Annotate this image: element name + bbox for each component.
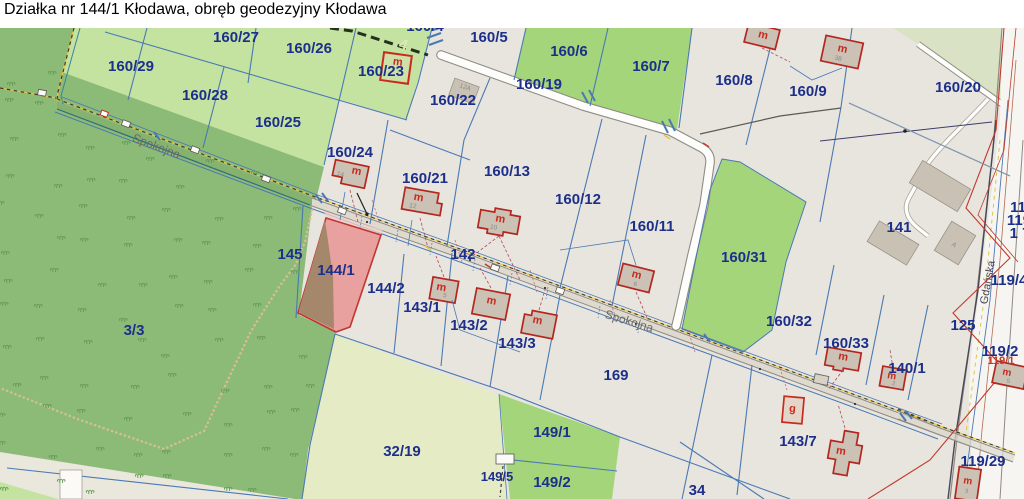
svg-text:160/31: 160/31	[721, 249, 767, 266]
svg-text:160/8: 160/8	[715, 72, 753, 89]
svg-text:143/1: 143/1	[403, 299, 441, 316]
svg-text:143/2: 143/2	[450, 317, 488, 334]
svg-text:160/4: 160/4	[406, 28, 444, 35]
svg-text:160/11: 160/11	[629, 218, 674, 235]
svg-text:34: 34	[689, 482, 706, 499]
svg-text:160/22: 160/22	[430, 92, 476, 109]
svg-text:119/1: 119/1	[988, 355, 1015, 367]
svg-text:143/7: 143/7	[779, 433, 817, 450]
svg-text:142: 142	[450, 246, 475, 263]
svg-text:3/3: 3/3	[124, 322, 145, 339]
svg-text:160/21: 160/21	[402, 170, 448, 187]
svg-text:143/3: 143/3	[498, 335, 536, 352]
svg-text:160/33: 160/33	[823, 335, 869, 352]
svg-text:160/23: 160/23	[358, 63, 404, 80]
svg-text:119/29: 119/29	[960, 453, 1005, 470]
svg-text:149/5: 149/5	[481, 469, 514, 484]
svg-text:144/2: 144/2	[367, 280, 405, 297]
svg-text:g: g	[789, 403, 797, 416]
svg-text:160/32: 160/32	[766, 313, 812, 330]
svg-text:160/5: 160/5	[470, 29, 508, 46]
svg-text:160/26: 160/26	[286, 40, 332, 57]
svg-text:145: 145	[277, 246, 302, 263]
svg-text:1 7: 1 7	[1010, 225, 1024, 242]
svg-text:169: 169	[603, 367, 628, 384]
svg-text:149/2: 149/2	[533, 474, 571, 491]
svg-text:160/27: 160/27	[213, 29, 259, 46]
svg-text:m: m	[963, 475, 973, 487]
svg-text:141: 141	[886, 219, 911, 236]
svg-text:160/12: 160/12	[555, 191, 601, 208]
svg-text:160/19: 160/19	[516, 76, 562, 93]
svg-text:160/13: 160/13	[484, 163, 530, 180]
svg-text:32/19: 32/19	[383, 443, 421, 460]
svg-text:160/6: 160/6	[550, 43, 588, 60]
svg-text:160/29: 160/29	[108, 58, 154, 75]
svg-text:149/1: 149/1	[533, 424, 571, 441]
svg-text:160/20: 160/20	[935, 79, 981, 96]
svg-text:160/25: 160/25	[255, 114, 301, 131]
svg-text:160/7: 160/7	[632, 58, 670, 75]
svg-text:119/4: 119/4	[991, 272, 1024, 289]
svg-text:125: 125	[950, 317, 975, 334]
svg-text:160/24: 160/24	[327, 144, 374, 161]
svg-text:140/1: 140/1	[888, 360, 926, 377]
svg-text:160/9: 160/9	[789, 83, 827, 100]
svg-text:144/1: 144/1	[317, 262, 355, 279]
svg-text:160/28: 160/28	[182, 87, 228, 104]
